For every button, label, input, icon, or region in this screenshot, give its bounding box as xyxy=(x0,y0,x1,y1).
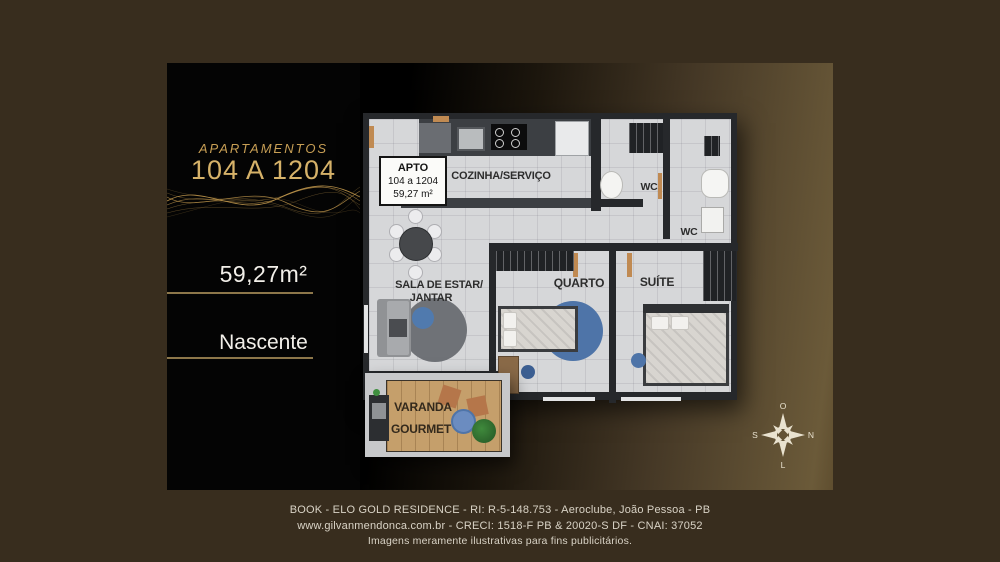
kitchen-label: COZINHA/SERVIÇO xyxy=(451,170,550,182)
footer-line-contact: www.gilvanmendonca.com.br - CRECI: 1518-… xyxy=(0,519,1000,535)
bedroom-wardrobe xyxy=(496,251,574,271)
gold-wave-decoration-icon xyxy=(167,175,360,223)
compass-west-label: O xyxy=(780,401,787,411)
wc-door xyxy=(658,173,662,199)
side-door xyxy=(369,126,374,148)
footer-line-disclaimer: Imagens meramente ilustrativas para fins… xyxy=(0,534,1000,550)
apartment-outline: COZINHA/SERVIÇO WC WC SALA DE ESTAR/ JAN… xyxy=(363,113,737,400)
entry-door xyxy=(433,116,449,122)
apartments-label: APARTAMENTOS xyxy=(167,141,360,156)
stove-burner xyxy=(511,128,520,137)
compass-north-label: N xyxy=(808,430,814,440)
divider-line xyxy=(167,292,313,294)
living-rug-blue-accent xyxy=(412,307,434,329)
compass-south-label: S xyxy=(752,430,758,440)
suite-wardrobe xyxy=(703,251,736,301)
suite-chair-blue xyxy=(631,353,646,368)
footer-legal: BOOK - ELO GOLD RESIDENCE - RI: R-5-148.… xyxy=(0,503,1000,550)
balcony-plant xyxy=(472,419,496,443)
dining-chair xyxy=(408,209,423,224)
kitchen-cabinet xyxy=(419,123,451,153)
dining-set xyxy=(385,209,445,281)
suite-window xyxy=(621,397,681,401)
living-window xyxy=(364,305,368,353)
brochure-page: APARTAMENTOS 104 A 1204 59,27m² Nascente xyxy=(0,0,1000,562)
suite-label: SUÍTE xyxy=(640,275,674,289)
bedroom-bed xyxy=(498,306,578,352)
living-label-line2: JANTAR xyxy=(410,292,453,304)
suite-door xyxy=(627,253,632,277)
apto-box-range: 104 a 1204 xyxy=(388,175,438,188)
suite-bed xyxy=(643,304,729,386)
kitchen-sink xyxy=(457,127,485,151)
dining-table xyxy=(399,227,433,261)
wall-wc1-bottom xyxy=(601,199,643,207)
barbecue-grill xyxy=(369,395,389,441)
apto-box-area: 59,27 m² xyxy=(393,188,432,201)
shower xyxy=(701,207,724,233)
apto-info-box: APTO 104 a 1204 59,27 m² xyxy=(379,156,447,206)
stove-burner xyxy=(495,128,504,137)
wc2-label: WC xyxy=(680,226,697,238)
stove-burner xyxy=(495,139,504,148)
wc-shower-box xyxy=(629,123,663,153)
unit-area: 59,27m² xyxy=(167,261,360,288)
refrigerator xyxy=(555,121,589,156)
divider-line xyxy=(167,357,313,359)
balcony-label-line1: VARANDA xyxy=(394,400,452,414)
desk-chair-blue xyxy=(521,365,535,379)
floor-plan: COZINHA/SERVIÇO WC WC SALA DE ESTAR/ JAN… xyxy=(362,110,740,460)
balcony: VARANDA GOURMET xyxy=(365,373,510,457)
wall-kitchen-wc xyxy=(591,116,601,211)
wall-wc-divider xyxy=(663,119,670,239)
stove-burner xyxy=(511,139,520,148)
bathtub xyxy=(701,169,729,198)
footer-line-book: BOOK - ELO GOLD RESIDENCE - RI: R-5-148.… xyxy=(0,503,1000,519)
info-panel: APARTAMENTOS 104 A 1204 59,27m² Nascente xyxy=(167,63,360,490)
compass-rose-icon: O N L S xyxy=(748,398,818,472)
compass-east-label: L xyxy=(781,460,786,470)
living-rug xyxy=(403,298,467,362)
bedroom-label: QUARTO xyxy=(554,276,605,290)
wc1-label: WC xyxy=(640,181,657,193)
balcony-label-line2: GOURMET xyxy=(391,422,451,436)
sun-orientation: Nascente xyxy=(167,331,360,355)
dining-chair xyxy=(408,265,423,280)
sofa xyxy=(377,299,411,357)
bedroom-window xyxy=(543,397,595,401)
wc2-cabinet xyxy=(704,136,720,156)
wall-bedroom-suite-divider xyxy=(609,243,616,403)
balcony-plant-small xyxy=(373,389,380,396)
toilet xyxy=(600,171,623,199)
living-label-line1: SALA DE ESTAR/ xyxy=(395,279,483,291)
apto-box-title: APTO xyxy=(398,162,428,175)
